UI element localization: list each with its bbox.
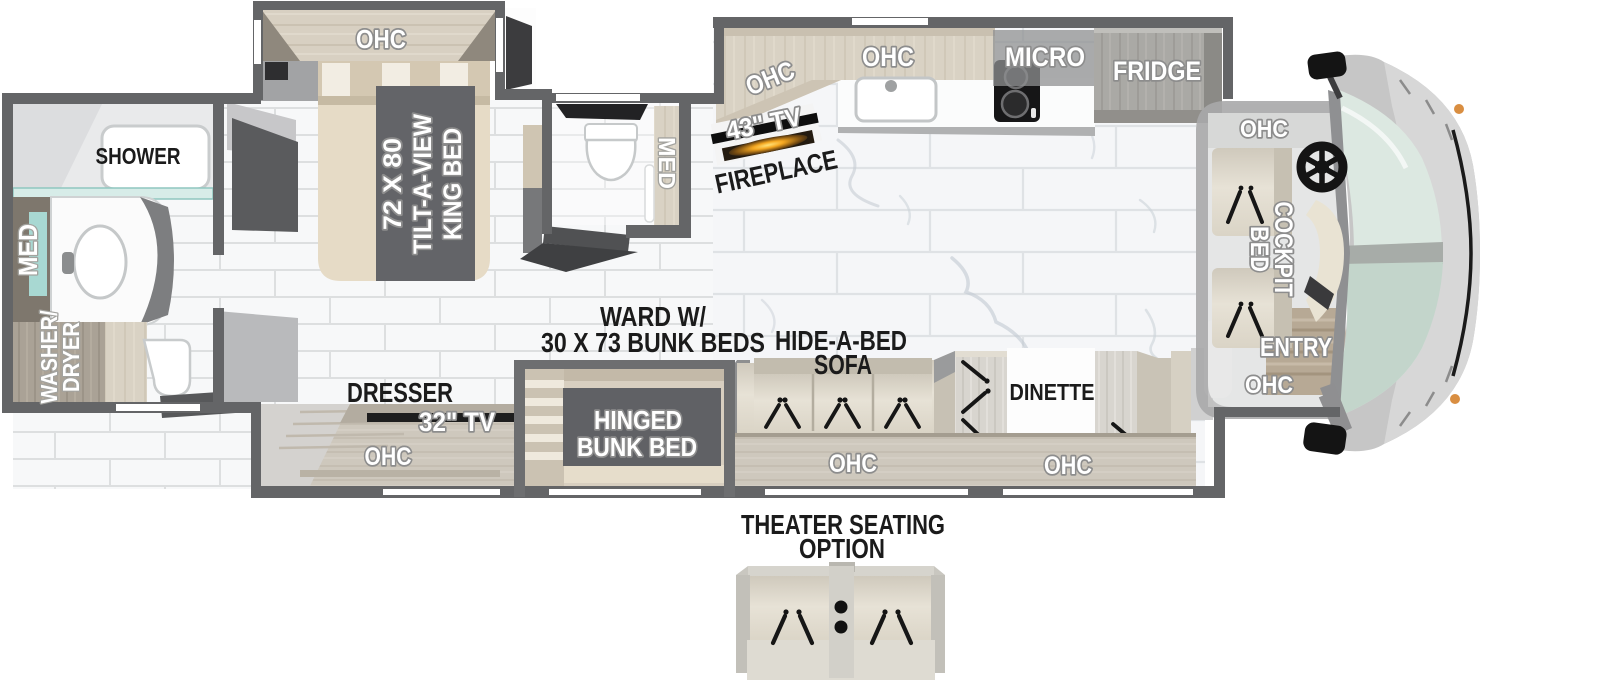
svg-text:OHC: OHC	[862, 42, 914, 72]
svg-text:BED: BED	[1245, 226, 1273, 272]
svg-text:32" TV: 32" TV	[419, 407, 495, 437]
svg-text:ENTRY: ENTRY	[1260, 332, 1332, 362]
svg-text:KING BED: KING BED	[439, 128, 467, 240]
svg-text:SHOWER: SHOWER	[96, 143, 181, 169]
svg-text:FRIDGE: FRIDGE	[1113, 56, 1201, 86]
svg-text:OHC: OHC	[356, 24, 406, 54]
svg-text:SOFA: SOFA	[814, 349, 872, 380]
svg-text:OHC: OHC	[1240, 116, 1288, 143]
svg-text:OHC: OHC	[1044, 452, 1092, 480]
svg-text:MICRO: MICRO	[1005, 42, 1085, 72]
svg-text:OHC: OHC	[829, 450, 877, 478]
svg-text:30 X 73 BUNK BEDS: 30 X 73 BUNK BEDS	[541, 327, 765, 358]
svg-text:OPTION: OPTION	[799, 533, 885, 564]
svg-text:OHC: OHC	[1245, 372, 1293, 399]
svg-text:HINGED: HINGED	[594, 405, 682, 435]
svg-text:DRESSER: DRESSER	[347, 377, 453, 408]
svg-text:MED: MED	[13, 224, 43, 276]
svg-text:OHC: OHC	[365, 443, 412, 471]
svg-text:MED: MED	[654, 137, 680, 189]
svg-text:DINETTE: DINETTE	[1010, 379, 1095, 405]
svg-text:TILT-A-VIEW: TILT-A-VIEW	[409, 114, 437, 254]
svg-text:DRYER: DRYER	[58, 322, 84, 392]
svg-text:BUNK BED: BUNK BED	[577, 432, 697, 462]
svg-text:72 X 80: 72 X 80	[379, 138, 407, 230]
